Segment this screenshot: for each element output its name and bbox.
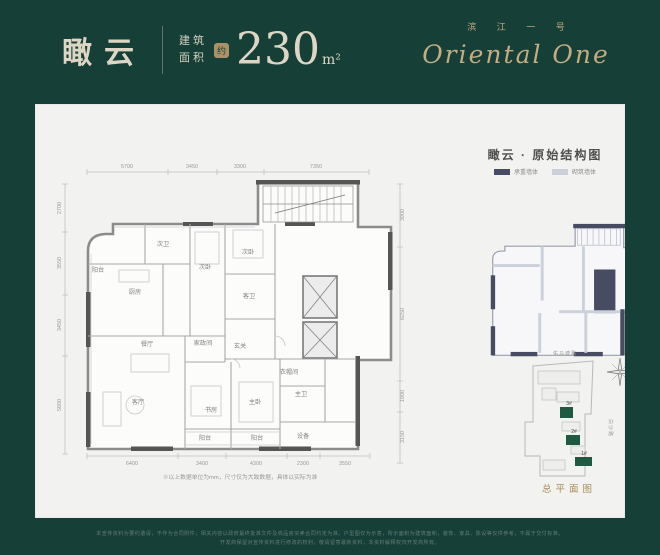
- dimension-label: 3150: [400, 431, 406, 443]
- room-label: 阳台: [199, 434, 211, 442]
- area-info: 建筑 面积 约 230 m²: [179, 28, 341, 72]
- disclaimer-line2: 开发商保留对宣传资料进行修改的权利，敬请留意最新资料，本资料解释权归开发商所有。: [0, 539, 660, 548]
- footer-disclaimer: 本宣传资料为要约邀请，不作为合同附件，相关内容以政府最终批准文件及商品房买卖合同…: [0, 530, 660, 547]
- room-label: 主卧: [249, 398, 261, 406]
- dimension-label: 3300: [234, 164, 246, 170]
- legend-swatch-loadbearing: [494, 169, 510, 175]
- siteplan-building: [560, 407, 573, 418]
- unit-name: 瞰云: [62, 28, 146, 72]
- room-label: 家政间: [194, 339, 213, 347]
- dimension-label: 2300: [297, 461, 309, 467]
- structure-legend: 承重墙体 砌筑墙体: [460, 167, 630, 176]
- floorplan-drawing: 阳台厨房次卫次卧次卧客卫玄关衣帽间餐厅家政间客厅书房主卧主卫阳台阳台设备 ※以上…: [86, 180, 393, 481]
- room-label: 设备: [297, 432, 310, 440]
- approx-badge: 约: [214, 43, 229, 58]
- building-label: 1#: [581, 451, 587, 457]
- disclaimer-line1: 本宣传资料为要约邀请，不作为合同附件，相关内容以政府最终批准文件及商品房买卖合同…: [0, 530, 660, 539]
- room-label: 客厅: [132, 398, 144, 406]
- room-label: 主卫: [295, 390, 307, 398]
- site-plan: 3#2#1# 佑马塘路 白沙路 总平面图: [525, 350, 625, 495]
- room-label: 衣帽间: [280, 368, 299, 376]
- legend-swatch-masonry: [552, 169, 568, 175]
- room-label: 次卧: [242, 248, 254, 256]
- siteplan-building: [575, 457, 592, 466]
- structure-diagram: [491, 224, 625, 356]
- compass-icon: [607, 358, 625, 386]
- brand-logo-en: Oriental One: [416, 40, 616, 69]
- area-number: 230: [236, 28, 320, 72]
- dimension-label: 5600: [57, 399, 63, 411]
- area-value: 230 m²: [236, 28, 341, 72]
- legend-item-loadbearing: 承重墙体: [494, 167, 538, 176]
- area-label: 建筑 面积: [179, 33, 207, 67]
- room-label: 阳台: [92, 266, 104, 274]
- dimension-label: 5700: [121, 164, 133, 170]
- legend-item-masonry: 砌筑墙体: [552, 167, 596, 176]
- siteplan-building: [566, 435, 580, 445]
- dimension-label: 1900: [400, 390, 406, 402]
- building-label: 2#: [571, 429, 577, 435]
- structure-title: 瞰云 · 原始结构图: [460, 146, 630, 163]
- room-label: 次卧: [199, 263, 211, 271]
- area-label-line1: 建筑: [179, 33, 207, 50]
- area-label-line2: 面积: [179, 50, 207, 67]
- room-label: 厨房: [129, 288, 141, 296]
- header-right: 滨 江 一 号 Oriental One: [416, 20, 616, 69]
- road-label-right: 白沙路: [607, 419, 614, 437]
- elevator-shafts: [303, 276, 337, 358]
- highlight-buildings: 3#2#1#: [560, 401, 592, 466]
- dimension-label: 8250: [400, 308, 406, 320]
- room-label: 玄关: [234, 342, 246, 350]
- siteplan-caption: 总平面图: [542, 483, 596, 495]
- header-divider: [162, 26, 163, 74]
- room-label: 书房: [205, 406, 217, 414]
- legend-label-masonry: 砌筑墙体: [572, 167, 596, 176]
- dimension-label: 3450: [186, 164, 198, 170]
- area-unit: m²: [322, 53, 341, 67]
- header-left: 瞰云 建筑 面积 约 230 m²: [62, 26, 341, 74]
- brand-name-cn: 滨 江 一 号: [416, 20, 616, 33]
- dimension-label: 4300: [250, 461, 262, 467]
- room-label: 餐厅: [141, 340, 153, 348]
- poster-page: 瞰云 建筑 面积 约 230 m² 滨 江 一 号 Oriental One: [0, 0, 660, 555]
- legend-label-loadbearing: 承重墙体: [514, 167, 538, 176]
- room-label: 次卫: [157, 240, 169, 248]
- site-other-buildings: [538, 371, 585, 470]
- content-panel: 5700345033007350640034004300230035502700…: [35, 104, 625, 518]
- dimension-label: 3400: [196, 461, 208, 467]
- room-label: 客卫: [243, 292, 255, 300]
- dimension-label: 3550: [339, 461, 351, 467]
- building-label: 3#: [566, 401, 572, 407]
- dimension-label: 6400: [126, 461, 138, 467]
- dimension-label: 3900: [400, 209, 406, 221]
- road-label-top: 佑马塘路: [553, 350, 577, 357]
- dimension-label: 2700: [57, 202, 63, 214]
- room-label: 阳台: [251, 434, 263, 442]
- dimension-label: 3450: [57, 319, 63, 331]
- plan-note: ※以上数据单位为mm，尺寸仅为大致数据，具体以实际为准: [163, 473, 318, 481]
- dimension-label: 3550: [57, 257, 63, 269]
- dimension-label: 7350: [310, 164, 322, 170]
